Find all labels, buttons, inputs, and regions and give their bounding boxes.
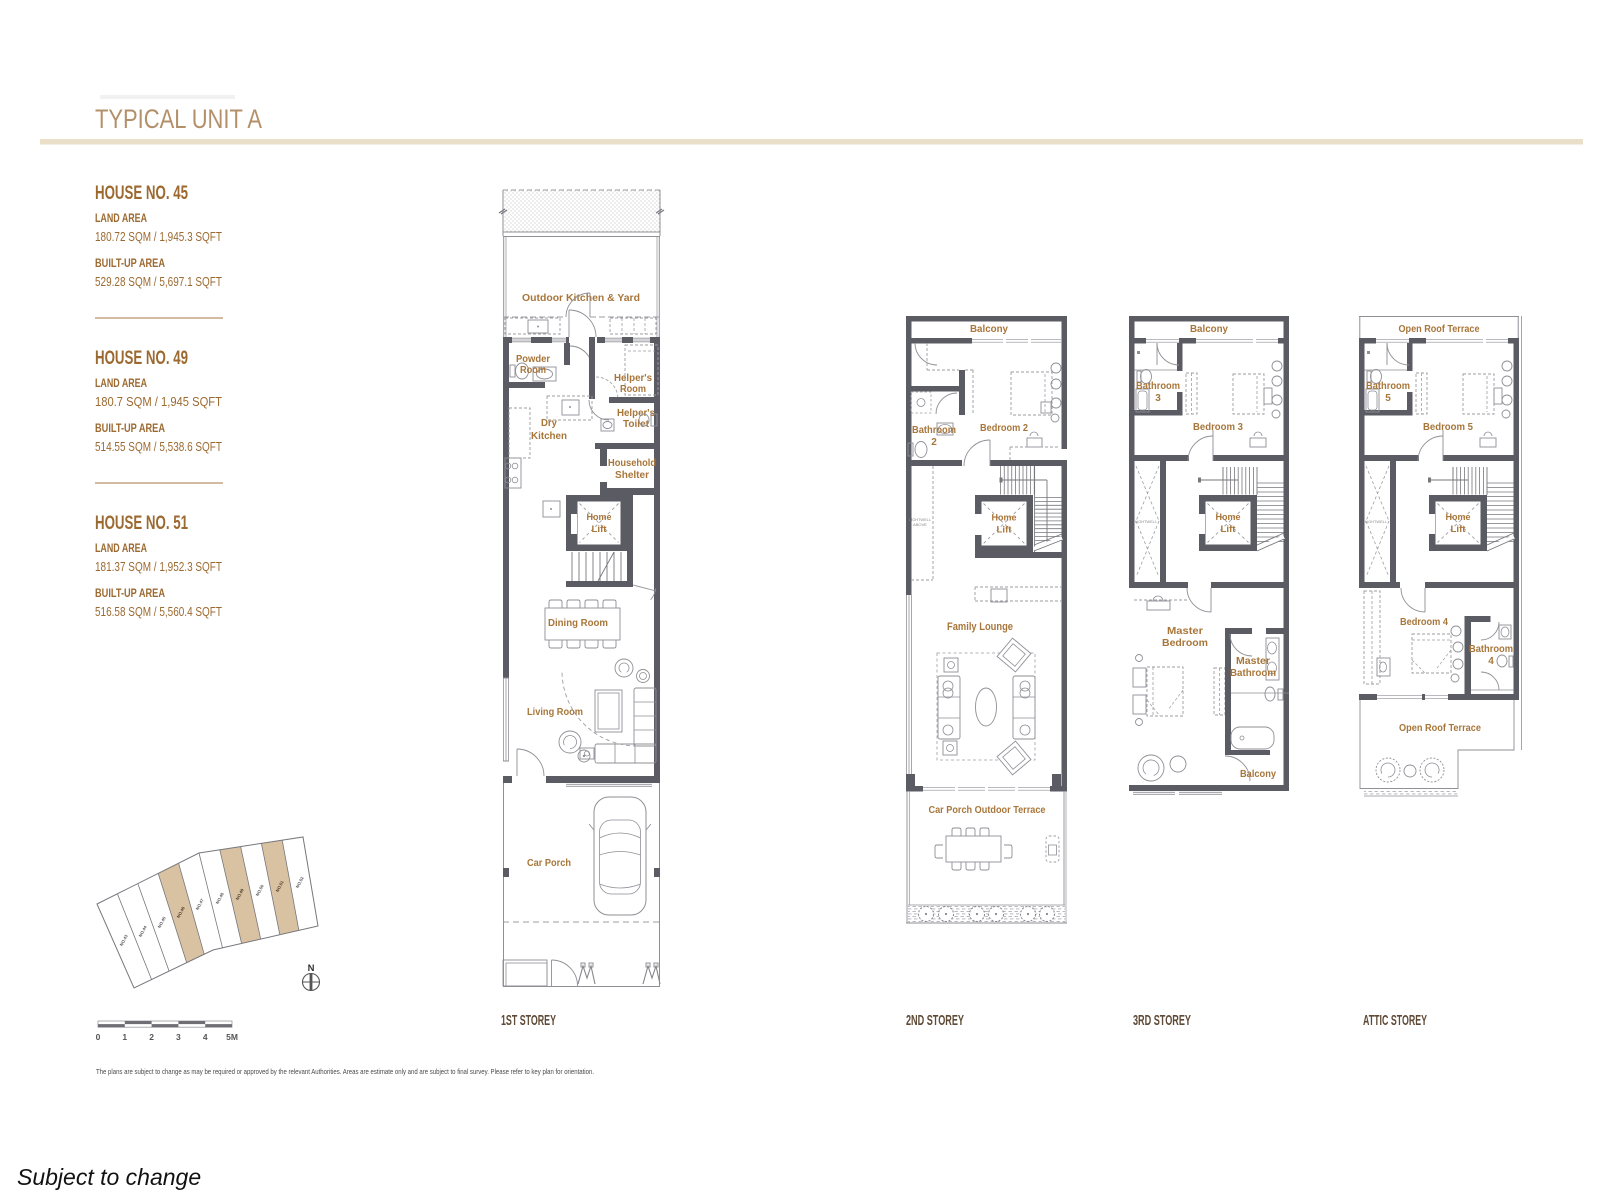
svg-text:180.72 SQM / 1,945.3 SQFT: 180.72 SQM / 1,945.3 SQFT xyxy=(95,230,222,244)
svg-text:Bathroom: Bathroom xyxy=(1136,381,1180,392)
svg-text:HOUSE NO. 51: HOUSE NO. 51 xyxy=(95,512,188,534)
svg-text:Balcony: Balcony xyxy=(1240,769,1276,780)
svg-text:2: 2 xyxy=(931,437,937,448)
svg-text:LAND AREA: LAND AREA xyxy=(95,211,147,225)
svg-text:Car Porch: Car Porch xyxy=(527,857,571,869)
svg-text:Dining Room: Dining Room xyxy=(548,617,608,629)
svg-text:Balcony: Balcony xyxy=(1190,323,1228,335)
svg-text:4: 4 xyxy=(1488,656,1494,667)
svg-text:3: 3 xyxy=(1155,393,1161,404)
svg-text:Dry: Dry xyxy=(541,417,557,429)
svg-text:1ST STOREY: 1ST STOREY xyxy=(501,1012,556,1029)
svg-text:LAND AREA: LAND AREA xyxy=(95,541,147,555)
svg-text:514.55 SQM / 5,538.6 SQFT: 514.55 SQM / 5,538.6 SQFT xyxy=(95,440,222,454)
svg-text:Powder: Powder xyxy=(516,354,550,365)
svg-text:Room: Room xyxy=(620,384,646,395)
svg-text:LIGHTWELL: LIGHTWELL xyxy=(1135,520,1157,524)
svg-text:The plans are subject to chang: The plans are subject to change as may b… xyxy=(96,1067,594,1076)
svg-text:Shelter: Shelter xyxy=(615,470,649,481)
svg-text:N: N xyxy=(308,963,315,974)
svg-text:Lift: Lift xyxy=(1451,524,1466,534)
svg-text:Toilet: Toilet xyxy=(623,419,650,430)
svg-text:Bedroom 5: Bedroom 5 xyxy=(1423,421,1473,433)
svg-text:LAND AREA: LAND AREA xyxy=(95,376,147,390)
svg-text:Bedroom 4: Bedroom 4 xyxy=(1400,616,1448,628)
svg-text:3RD STOREY: 3RD STOREY xyxy=(1133,1012,1191,1029)
svg-text:529.28 SQM / 5,697.1 SQFT: 529.28 SQM / 5,697.1 SQFT xyxy=(95,275,222,289)
svg-text:2ND STOREY: 2ND STOREY xyxy=(906,1012,964,1029)
svg-text:Outdoor Kitchen & Yard: Outdoor Kitchen & Yard xyxy=(522,292,640,304)
svg-text:HOUSE NO. 49: HOUSE NO. 49 xyxy=(95,347,188,369)
svg-text:Household: Household xyxy=(608,458,656,469)
svg-text:Home: Home xyxy=(1216,512,1241,522)
svg-text:HOUSE NO. 45: HOUSE NO. 45 xyxy=(95,182,188,204)
svg-text:Room: Room xyxy=(520,365,546,376)
svg-text:BUILT-UP AREA: BUILT-UP AREA xyxy=(95,421,165,435)
svg-text:Bathroom: Bathroom xyxy=(912,425,956,436)
svg-text:Open Roof Terrace: Open Roof Terrace xyxy=(1399,722,1481,734)
svg-text:180.7 SQM / 1,945 SQFT: 180.7 SQM / 1,945 SQFT xyxy=(95,395,222,409)
svg-text:Bedroom 3: Bedroom 3 xyxy=(1193,421,1243,433)
svg-text:Bathroom: Bathroom xyxy=(1469,644,1513,655)
svg-text:Balcony: Balcony xyxy=(970,323,1008,335)
svg-text:Open Roof Terrace: Open Roof Terrace xyxy=(1399,323,1480,335)
svg-text:5: 5 xyxy=(1385,393,1391,404)
svg-text:LIGHTWELL: LIGHTWELL xyxy=(1365,520,1387,524)
svg-text:Lift: Lift xyxy=(592,524,607,534)
svg-text:Bedroom 2: Bedroom 2 xyxy=(980,422,1028,434)
svg-text:Living Room: Living Room xyxy=(527,706,583,718)
svg-text:516.58 SQM / 5,560.4 SQFT: 516.58 SQM / 5,560.4 SQFT xyxy=(95,605,222,619)
svg-text:Helper's: Helper's xyxy=(617,408,655,419)
svg-text:ABOVE: ABOVE xyxy=(913,523,928,527)
svg-text:3: 3 xyxy=(176,1032,181,1042)
svg-text:Bathroom: Bathroom xyxy=(1230,668,1276,679)
svg-text:Lift: Lift xyxy=(1221,524,1236,534)
svg-text:1: 1 xyxy=(122,1032,127,1042)
svg-text:Family Lounge: Family Lounge xyxy=(947,621,1013,633)
svg-text:TYPICAL UNIT A: TYPICAL UNIT A xyxy=(95,104,262,134)
svg-text:Master: Master xyxy=(1167,625,1203,637)
svg-text:2: 2 xyxy=(149,1032,154,1042)
svg-text:Home: Home xyxy=(992,513,1017,523)
svg-text:Helper's: Helper's xyxy=(614,373,652,384)
svg-text:Bathroom: Bathroom xyxy=(1366,381,1410,392)
svg-text:Lift: Lift xyxy=(997,525,1012,535)
svg-text:4: 4 xyxy=(203,1032,208,1042)
svg-text:Master: Master xyxy=(1236,656,1270,667)
svg-text:LIGHTWELL: LIGHTWELL xyxy=(909,518,931,522)
svg-text:Car Porch Outdoor Terrace: Car Porch Outdoor Terrace xyxy=(929,804,1046,816)
svg-text:Subject to change: Subject to change xyxy=(17,1164,201,1190)
svg-text:ATTIC STOREY: ATTIC STOREY xyxy=(1363,1012,1427,1029)
svg-text:Bedroom: Bedroom xyxy=(1162,637,1208,649)
svg-text:Kitchen: Kitchen xyxy=(531,430,567,442)
svg-text:Home: Home xyxy=(1446,512,1471,522)
svg-text:181.37 SQM / 1,952.3 SQFT: 181.37 SQM / 1,952.3 SQFT xyxy=(95,560,222,574)
svg-text:BUILT-UP AREA: BUILT-UP AREA xyxy=(95,256,165,270)
svg-text:BUILT-UP AREA: BUILT-UP AREA xyxy=(95,586,165,600)
svg-text:Home: Home xyxy=(587,512,612,522)
svg-text:5M: 5M xyxy=(226,1032,238,1042)
svg-text:0: 0 xyxy=(96,1032,101,1042)
